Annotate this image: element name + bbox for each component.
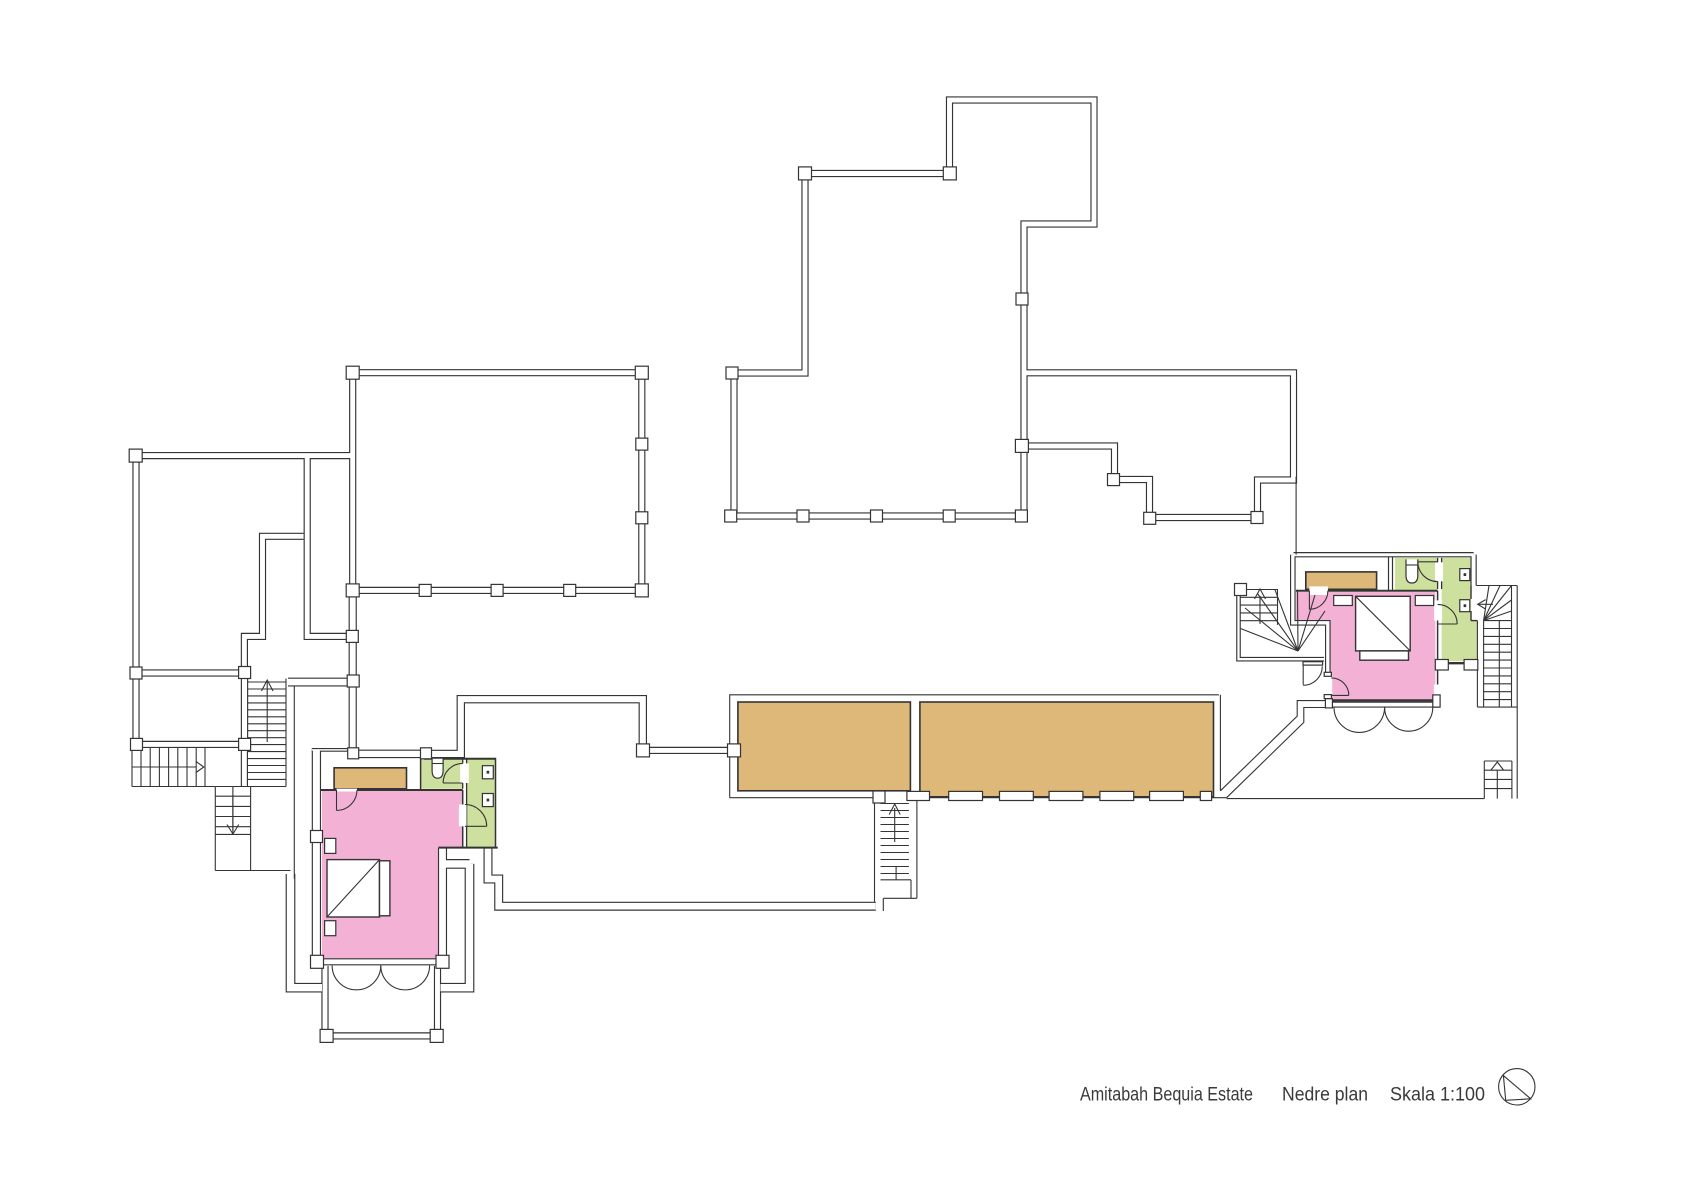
svg-text:Skala 1:100: Skala 1:100 xyxy=(1390,1085,1485,1106)
svg-text:Amitabah Bequia Estate: Amitabah Bequia Estate xyxy=(1080,1085,1253,1106)
svg-text:Nedre plan: Nedre plan xyxy=(1282,1085,1368,1106)
